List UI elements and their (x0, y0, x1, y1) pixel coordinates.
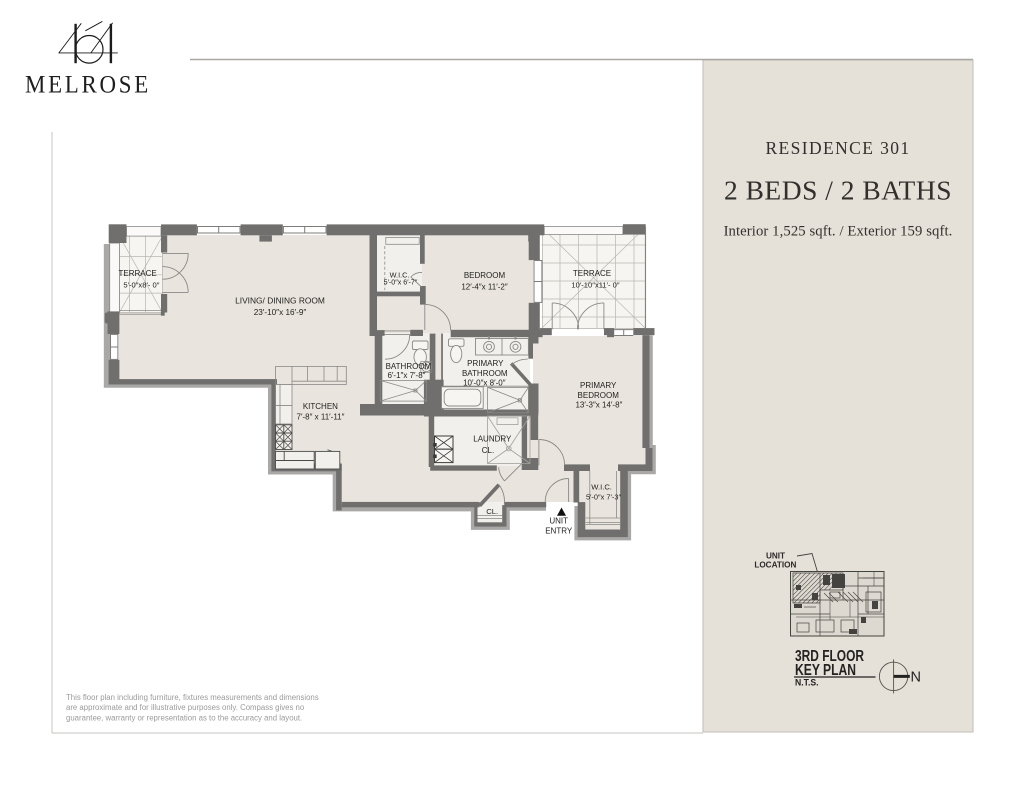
svg-text:BATHROOM: BATHROOM (386, 362, 432, 371)
svg-text:5′-0″x 7′-3″: 5′-0″x 7′-3″ (586, 493, 622, 502)
svg-text:TERRACE: TERRACE (118, 269, 156, 278)
svg-text:UNIT: UNIT (766, 552, 785, 561)
svg-text:LAUNDRY: LAUNDRY (473, 435, 512, 444)
svg-text:ENTRY: ENTRY (545, 526, 573, 535)
svg-text:PRIMARY: PRIMARY (580, 381, 617, 390)
svg-text:LIVING/ DINING ROOM: LIVING/ DINING ROOM (235, 296, 325, 306)
svg-text:MELROSE: MELROSE (25, 72, 151, 99)
svg-text:RESIDENCE 301: RESIDENCE 301 (765, 138, 910, 158)
svg-text:KITCHEN: KITCHEN (303, 402, 338, 411)
svg-text:5′-0″x8′- 0″: 5′-0″x8′- 0″ (123, 281, 159, 290)
svg-text:N.T.S.: N.T.S. (795, 678, 819, 688)
svg-text:TERRACE: TERRACE (573, 269, 611, 278)
svg-text:13′-3″x 14′-8″: 13′-3″x 14′-8″ (575, 400, 622, 409)
svg-text:UNIT: UNIT (549, 517, 568, 526)
svg-text:LOCATION: LOCATION (754, 561, 796, 570)
svg-text:W.I.C.: W.I.C. (591, 482, 612, 491)
svg-text:BEDROOM: BEDROOM (578, 391, 620, 400)
svg-text:This floor plan including furn: This floor plan including furniture, fix… (66, 693, 319, 702)
svg-text:6′-1″x 7′-8″: 6′-1″x 7′-8″ (387, 371, 425, 380)
svg-text:CL.: CL. (486, 507, 498, 516)
svg-text:are approximate and for illust: are approximate and for illustrative pur… (66, 703, 305, 712)
svg-text:2 BEDS / 2 BATHS: 2 BEDS / 2 BATHS (724, 175, 952, 206)
svg-text:guarantee, warranty or represe: guarantee, warranty or representation as… (66, 713, 302, 722)
svg-text:PRIMARY: PRIMARY (467, 359, 504, 368)
svg-text:Interior 1,525 sqft. / Exterio: Interior 1,525 sqft. / Exterior 159 sqft… (724, 224, 953, 240)
svg-text:N: N (911, 670, 921, 686)
svg-text:10′-0″x 8′-0″: 10′-0″x 8′-0″ (463, 378, 506, 387)
svg-text:BATHROOM: BATHROOM (462, 369, 508, 378)
svg-text:7′-8″ x 11′-11″: 7′-8″ x 11′-11″ (297, 413, 345, 422)
svg-text:BEDROOM: BEDROOM (464, 271, 506, 280)
svg-text:23′-10″x 16′-9″: 23′-10″x 16′-9″ (254, 308, 307, 317)
svg-text:CL.: CL. (482, 446, 494, 455)
svg-text:12′-4″x 11′-2″: 12′-4″x 11′-2″ (461, 282, 507, 291)
svg-text:10′-10″x11′- 0″: 10′-10″x11′- 0″ (571, 280, 619, 289)
svg-text:5′-0″x 6′-7″: 5′-0″x 6′-7″ (384, 279, 418, 287)
